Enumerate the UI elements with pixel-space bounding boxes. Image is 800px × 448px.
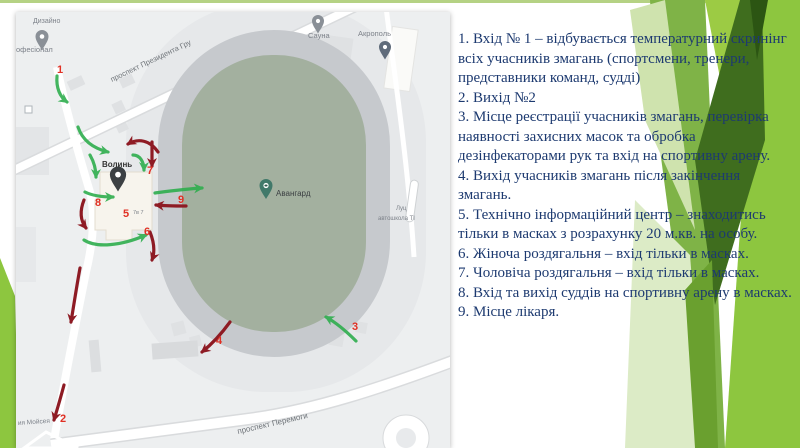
label-dyzaino: Дизайно [33, 17, 61, 25]
map-poi-icon [25, 106, 32, 113]
stadium-field [182, 55, 366, 332]
label-luts: Луц [396, 206, 407, 212]
list-item: 1. Вхід № 1 – відбувається температурний… [458, 30, 794, 89]
label-volyn: Волинь [102, 160, 132, 169]
marker-9: 9 [178, 194, 184, 206]
label-profesional: офесіонал [16, 45, 53, 54]
map-image: Дизайно офесіонал проспект Президента Гр… [16, 12, 450, 448]
map-svg: Дизайно офесіонал проспект Президента Гр… [16, 12, 450, 448]
label-akropol: Акрополь [358, 29, 391, 38]
label-bldg-small: 7в 7 [133, 210, 144, 216]
marker-4: 4 [216, 335, 223, 347]
list-item: 2. Вихід №2 [458, 89, 794, 109]
label-avanhard: Авангард [276, 189, 311, 198]
list-item: 9. Місце лікаря. [458, 303, 794, 323]
label-avtoshkola: автошкола ТІ [378, 216, 415, 222]
list-item: 7. Чоловіча роздягальня – вхід тільки в … [458, 264, 794, 284]
list-item: 8. Вхід та вихід суддів на спортивну аре… [458, 284, 794, 304]
slide-root: { "slide": { "accent_green": "#8dc63f", … [0, 0, 800, 448]
list-item: 6. Жіноча роздягальня – вхід тільки в ма… [458, 245, 794, 265]
marker-3: 3 [352, 321, 358, 333]
instruction-list: 1. Вхід № 1 – відбувається температурний… [458, 30, 794, 323]
marker-5: 5 [123, 208, 129, 220]
label-sauna: Сауна [308, 31, 330, 40]
list-item: 5. Технічно інформаційний центр – знаход… [458, 206, 794, 245]
marker-6: 6 [144, 226, 150, 238]
marker-1: 1 [57, 64, 63, 76]
marker-7: 7 [147, 165, 153, 177]
marker-8: 8 [95, 197, 101, 209]
list-item: 4. Вихід учасників змагань після закінче… [458, 167, 794, 206]
list-item: 3. Місце реєстрації учасників змагань, п… [458, 108, 794, 167]
marker-2: 2 [60, 413, 66, 425]
